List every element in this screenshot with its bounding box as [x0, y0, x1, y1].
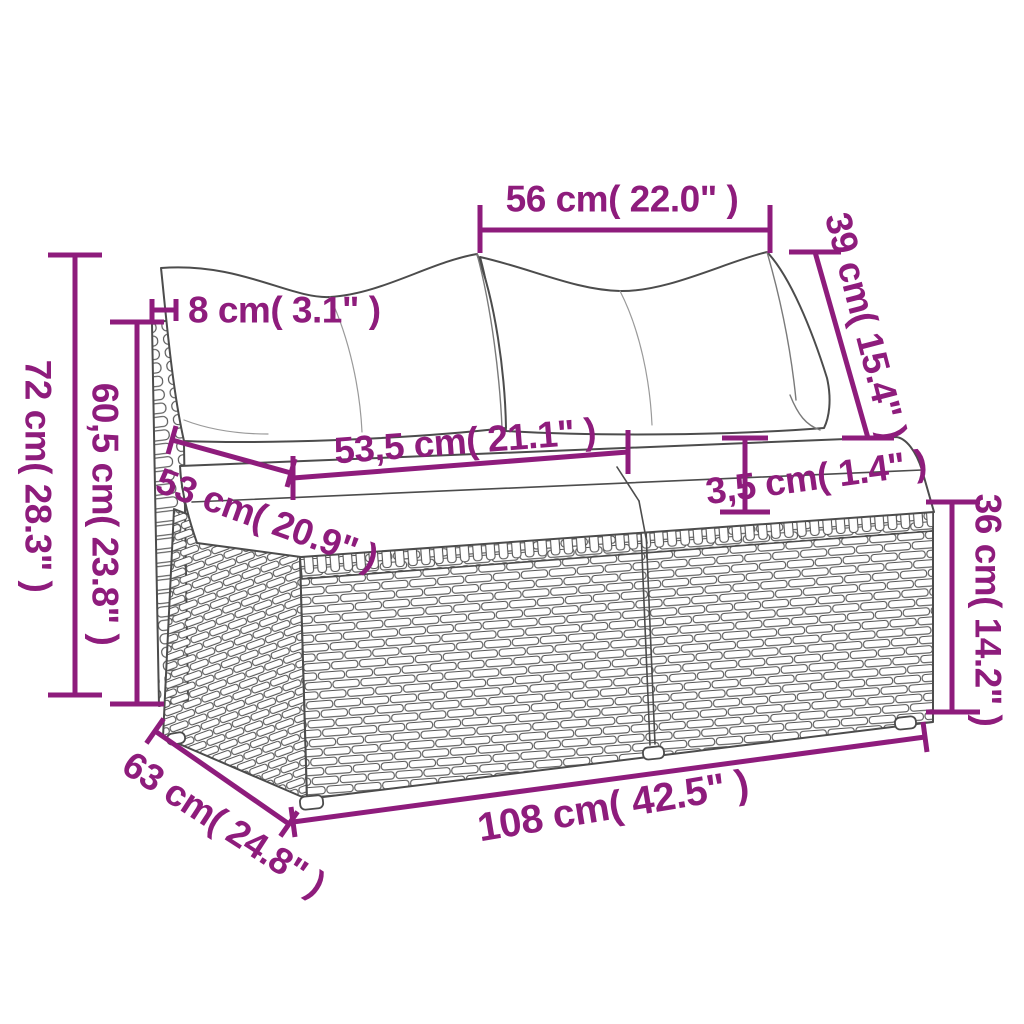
- dim-total-height-label: 72 cm( 28.3" ): [18, 360, 59, 593]
- sofa-dimension-drawing: 56 cm( 22.0" ) 39 cm( 15.4" ) 8 cm( 3.1"…: [0, 0, 1024, 1024]
- dim-pillow-height-label: 39 cm( 15.4" ): [817, 208, 915, 444]
- dim-back-panel-thickness-label: 8 cm( 3.1" ): [188, 290, 381, 331]
- back-pillow-right: [480, 252, 830, 434]
- dimension-diagram: 56 cm( 22.0" ) 39 cm( 15.4" ) 8 cm( 3.1"…: [0, 0, 1024, 1024]
- dim-back-height-label: 60,5 cm( 23.8" ): [85, 383, 126, 646]
- dim-base-height-label: 36 cm( 14.2" ): [968, 494, 1009, 727]
- back-pillow-left: [161, 254, 506, 442]
- dim-pillow-width-label: 56 cm( 22.0" ): [506, 179, 739, 220]
- dim-total-width-label: 108 cm( 42.5" ): [474, 762, 751, 851]
